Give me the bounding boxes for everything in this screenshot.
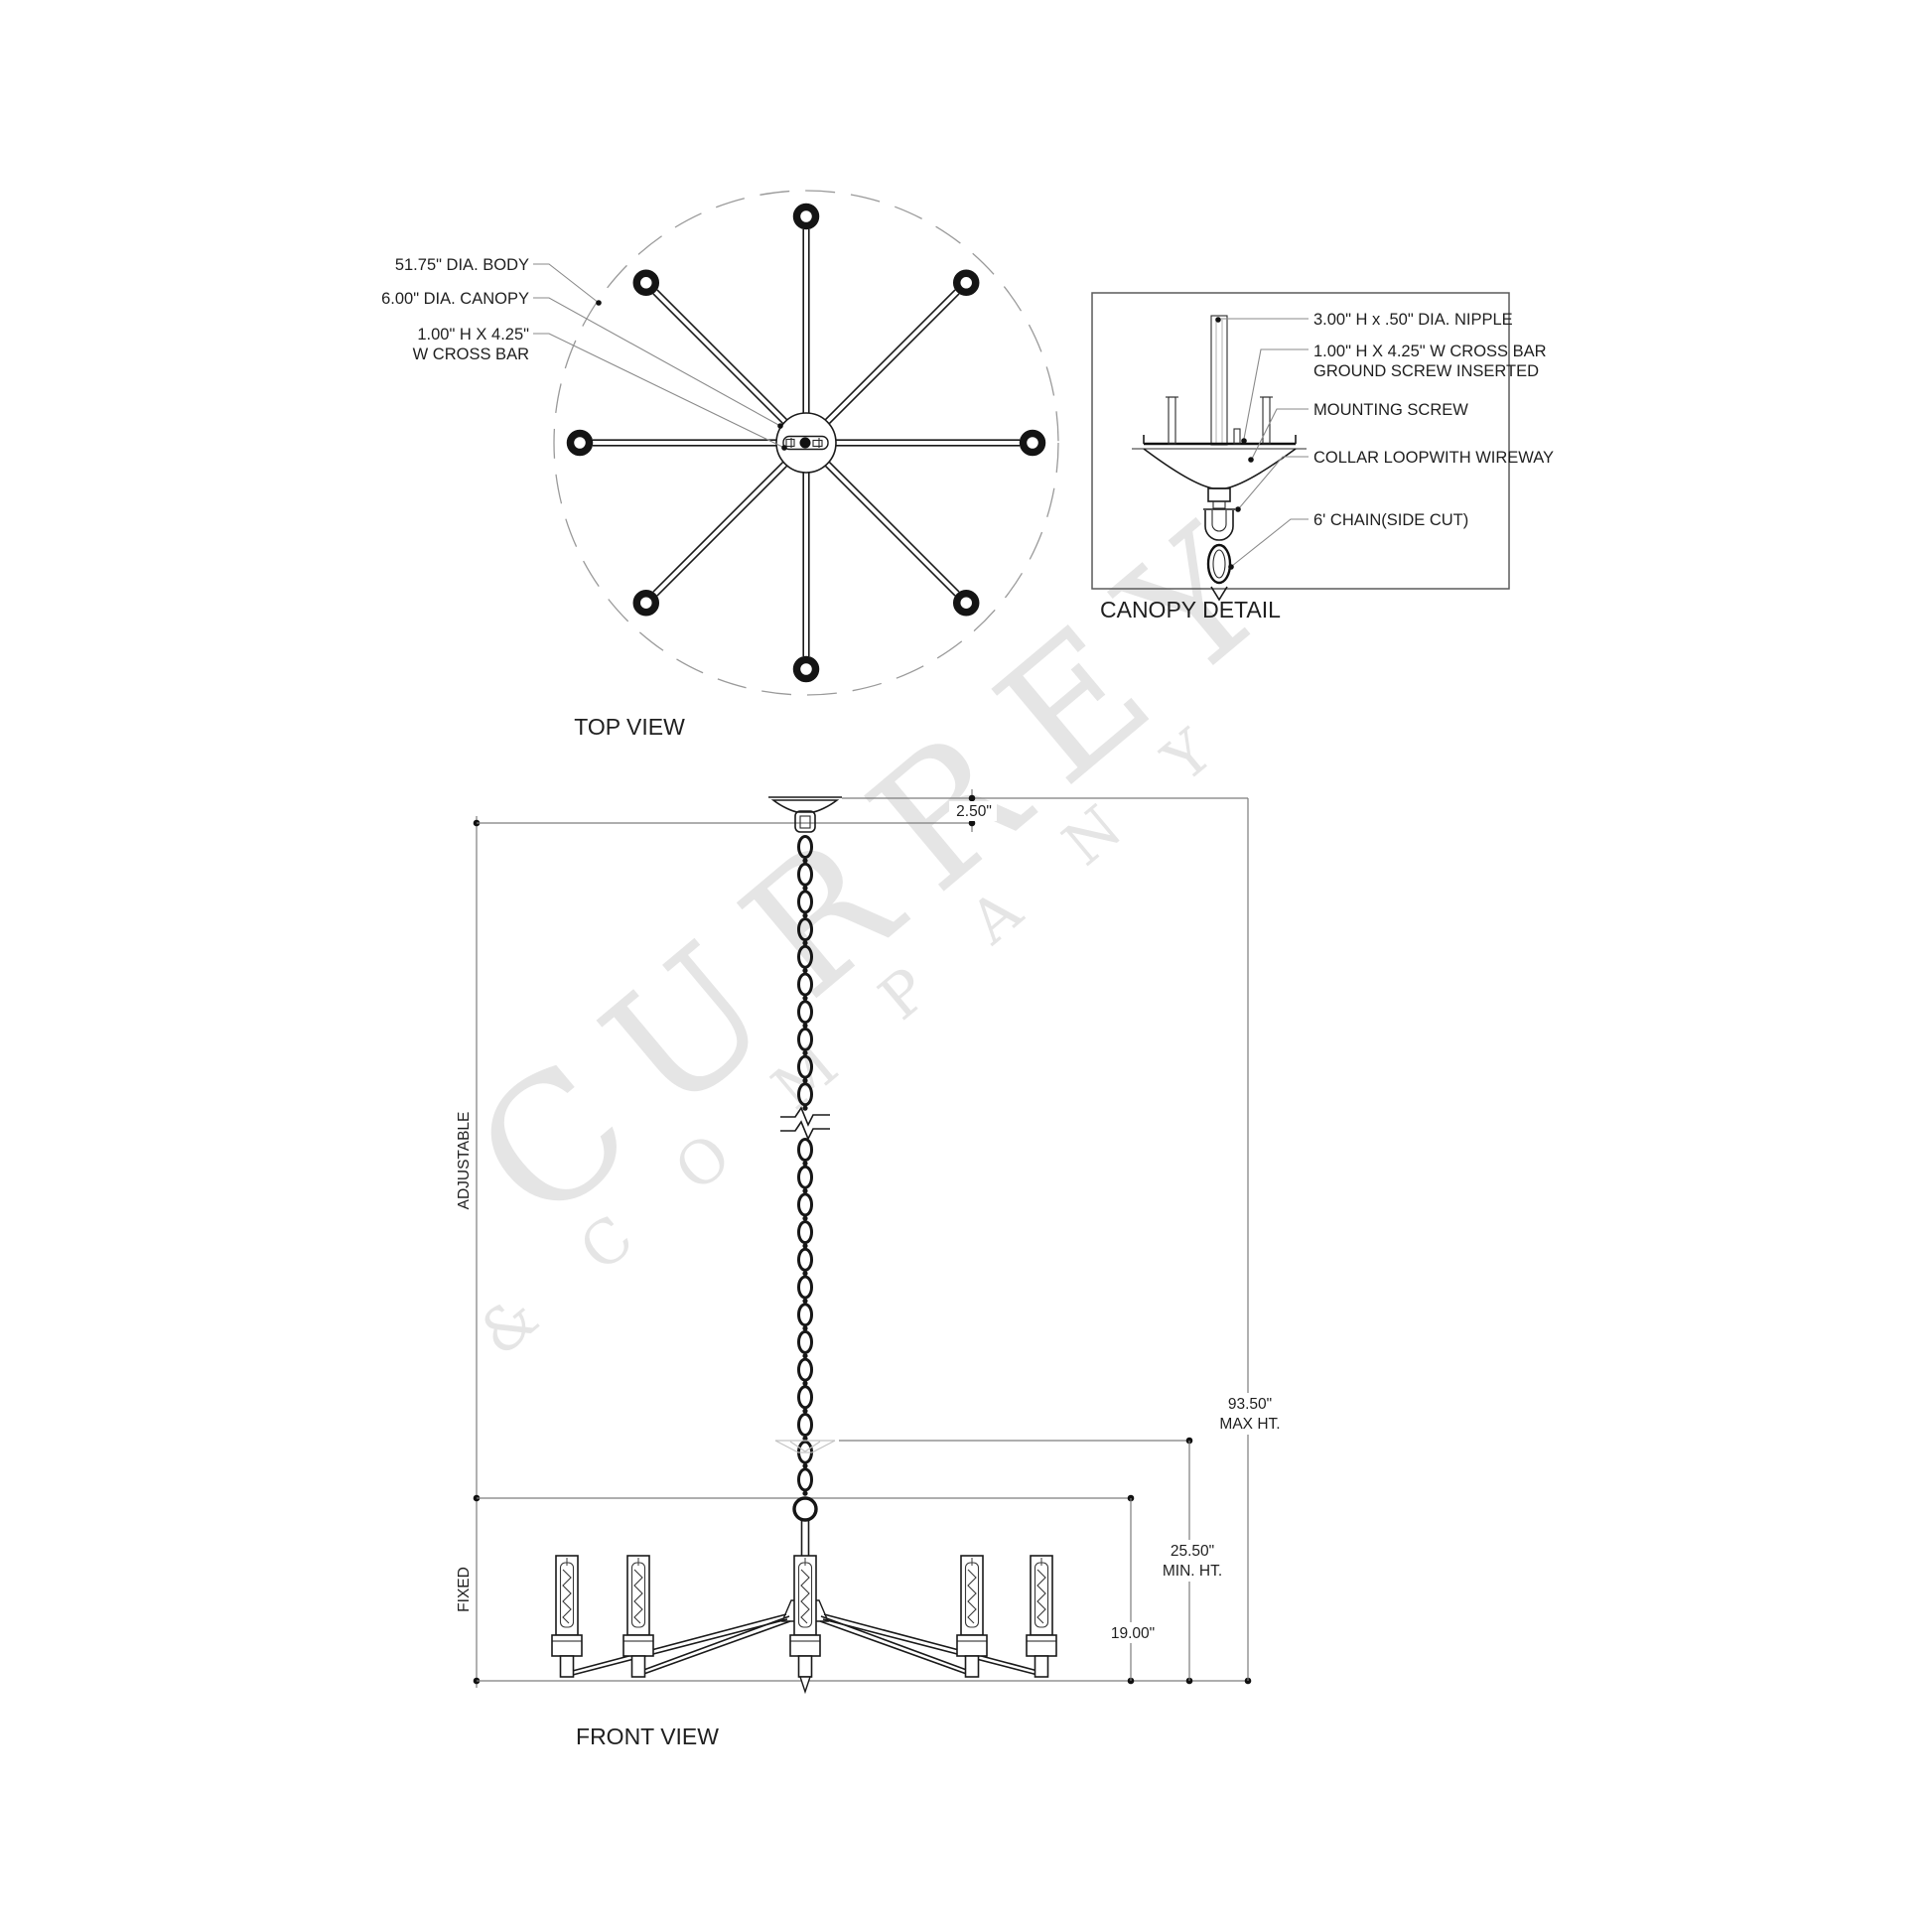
bulb-icon (1024, 434, 1042, 453)
center-finial (800, 1677, 810, 1692)
front-view-title: FRONT VIEW (576, 1724, 719, 1749)
center-screw (800, 438, 811, 449)
bulb-icon (632, 269, 659, 296)
mounting-screw-label: MOUNTING SCREW (1313, 401, 1468, 419)
canopy-detail-title: CANOPY DETAIL (1100, 597, 1281, 622)
collar-ring (794, 1498, 816, 1556)
top-view: 51.75" DIA. BODY 6.00" DIA. CANOPY 1.00"… (381, 191, 1058, 740)
chain-label: 6' CHAIN(SIDE CUT) (1313, 511, 1468, 529)
canopy-hub-top-view (776, 413, 836, 473)
bulb-icon (953, 269, 980, 296)
detail-crossbar-label-line1: 1.00" H X 4.25" W CROSS BAR (1313, 343, 1547, 360)
bulb-icon (632, 590, 659, 617)
screw (1263, 397, 1270, 444)
drawing-canvas: CURREY & C O M P A N Y (0, 0, 1932, 1932)
min-height-value: 25.50" (1171, 1543, 1214, 1560)
candle-light (623, 1556, 653, 1677)
watermark-line1: CURREY (439, 468, 1329, 1260)
canopy-height-dim: 2.50" (956, 803, 992, 820)
max-height-label: MAX HT. (1219, 1416, 1280, 1433)
ground-screw (1234, 429, 1240, 444)
crossbar-label-line2: W CROSS BAR (413, 345, 529, 363)
spec-sheet-page: CURREY & C O M P A N Y (0, 0, 1932, 1932)
canopy-dia-label: 6.00" DIA. CANOPY (381, 290, 529, 308)
candle-light (552, 1556, 582, 1677)
bulb-icon (797, 660, 816, 679)
candle-light (957, 1556, 987, 1677)
bulb-icon (953, 590, 980, 617)
body-height-dim: 19.00" (1111, 1625, 1155, 1642)
collar-loop-label: COLLAR LOOPWITH WIREWAY (1313, 449, 1554, 467)
fixed-label: FIXED (456, 1567, 473, 1612)
max-height-value: 93.50" (1228, 1396, 1272, 1413)
candles (552, 1556, 1056, 1692)
crossbar-label-line1: 1.00" H X 4.25" (417, 326, 529, 344)
detail-crossbar-label-line2: GROUND SCREW INSERTED (1313, 362, 1539, 380)
bulb-icon (797, 207, 816, 226)
cross-bar-detail (1144, 397, 1296, 444)
screw (1169, 397, 1175, 444)
candle-light (1027, 1556, 1056, 1677)
adjustable-label: ADJUSTABLE (456, 1112, 473, 1210)
bulb-icon (571, 434, 590, 453)
nipple-label: 3.00" H x .50" DIA. NIPPLE (1313, 311, 1513, 329)
candle-light-center (790, 1556, 820, 1677)
nipple (1211, 316, 1227, 445)
min-height-label: MIN. HT. (1163, 1563, 1222, 1580)
body-dia-label: 51.75" DIA. BODY (395, 256, 529, 274)
top-view-title: TOP VIEW (574, 714, 685, 740)
